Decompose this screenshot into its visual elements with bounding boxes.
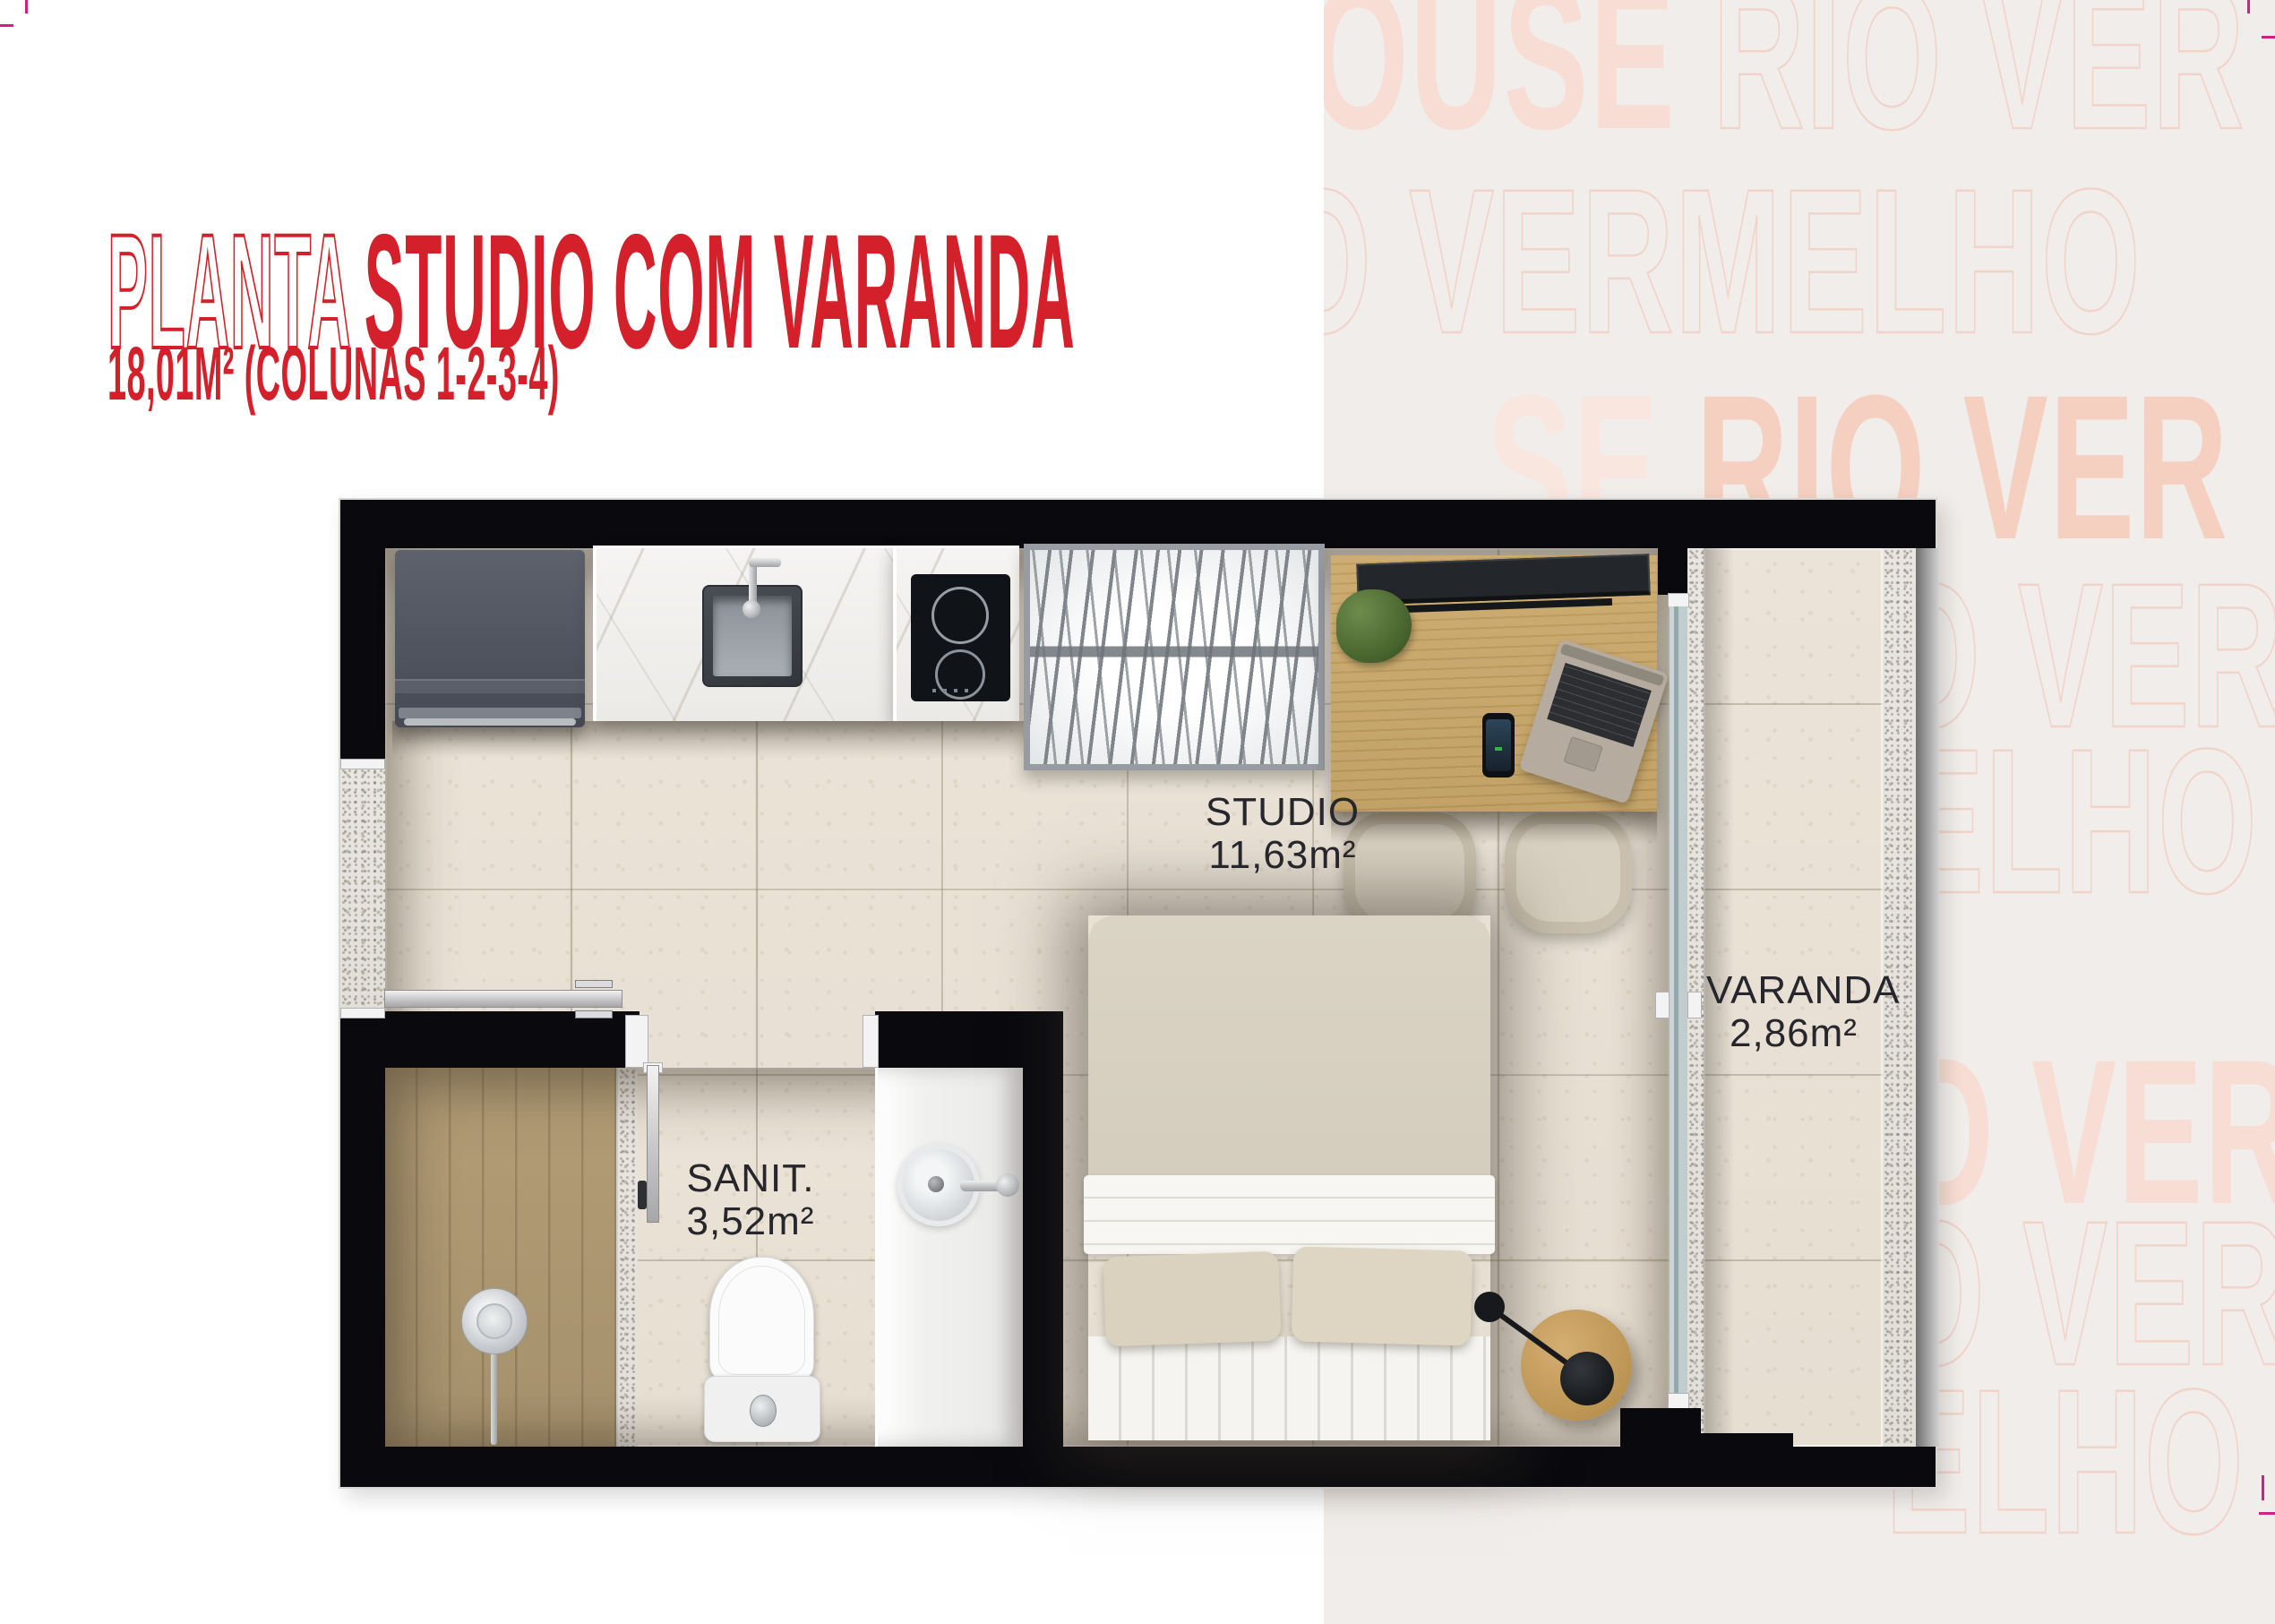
washer-icon [395, 550, 585, 727]
pillow [1103, 1251, 1281, 1347]
entry-door [384, 990, 622, 1008]
phone-screen-dot [1495, 747, 1502, 751]
shower-arm [491, 1351, 497, 1445]
wall-step [1620, 1433, 1793, 1447]
bed-duvet [1088, 915, 1490, 1182]
sliding-door-handle [1655, 992, 1670, 1018]
watermark-row: OUSE RIO VER [1324, 0, 2245, 160]
kitchen-faucet-base [743, 600, 760, 618]
wall-cap [340, 759, 385, 769]
entry-wall-granite [340, 768, 385, 1010]
cooktop-burner [931, 587, 989, 644]
bathroom-door [647, 1065, 659, 1223]
room-area: 3,52m² [670, 1200, 831, 1243]
drying-rack-icon [1024, 544, 1325, 770]
crop-mark-bottom-right [2259, 1512, 2275, 1515]
room-name: STUDIO [1193, 791, 1372, 834]
washer-trim [399, 708, 581, 718]
crop-mark-top-left [25, 0, 28, 13]
toilet-icon [709, 1257, 814, 1384]
plant-icon [1336, 589, 1412, 663]
room-area: 2,86m² [1706, 1012, 1881, 1055]
page-subtitle: 18,01M² (COLUNAS 1-2-3-4) [107, 336, 560, 411]
watermark-row: ELHO [1899, 718, 2258, 924]
desk [1331, 555, 1657, 812]
desk-shadow [1331, 812, 1657, 844]
watermark-text: ELHO [1899, 706, 2258, 936]
watermark-row: ELHO [1885, 1359, 2245, 1565]
varanda-wall-shadow [1916, 548, 1939, 1447]
bed-striped-pillows [1088, 1336, 1490, 1440]
shower-floor [385, 1068, 618, 1447]
room-label-sanit: SANIT. 3,52m² [670, 1157, 831, 1244]
bed [1088, 915, 1490, 1440]
door-jamb [863, 1015, 879, 1068]
shower-partition-wall [618, 1068, 638, 1447]
sliding-door-cap [1668, 1393, 1689, 1409]
sliding-door-handle [1687, 992, 1702, 1018]
watermark-text: ELHO [1885, 1346, 2245, 1577]
interior-wall [371, 1011, 640, 1068]
pillow [1292, 1246, 1473, 1345]
crop-mark-top-right [2262, 36, 2275, 39]
crop-mark-bottom-right [2262, 1475, 2264, 1500]
vanity-counter [875, 1068, 1023, 1447]
crop-mark-top-left [0, 24, 13, 27]
toilet-flush-button [750, 1395, 777, 1427]
bathroom-door-handle [638, 1181, 647, 1209]
phone-screen [1486, 719, 1511, 771]
cooktop-icon [911, 574, 1010, 701]
kitchen-faucet-arm [749, 558, 781, 567]
lamp-head-icon [1474, 1292, 1505, 1322]
interior-wall [1023, 1011, 1063, 1447]
phone-icon [1482, 713, 1515, 778]
watermark-text: O VERMELHO [1324, 146, 2142, 376]
lamp-base [1560, 1352, 1614, 1405]
crop-mark-top-right [2247, 0, 2250, 13]
kitchen-counter [593, 546, 893, 721]
cooktop-controls [932, 689, 974, 692]
sliding-door-cap [1668, 593, 1689, 607]
room-label-varanda: VARANDA 2,86m² [1706, 969, 1881, 1056]
cooktop-counter [893, 546, 1019, 721]
laptop-icon [1518, 639, 1669, 804]
sliding-glass-door [1670, 606, 1687, 1393]
watermark-row: O VERMELHO [1324, 159, 2142, 365]
room-label-studio: STUDIO 11,63m² [1193, 791, 1372, 878]
laptop-trackpad [1563, 736, 1602, 772]
bed-sheet-fold [1084, 1175, 1495, 1254]
room-name: SANIT. [670, 1157, 831, 1200]
washer-handle [395, 679, 585, 693]
wall-cap [340, 1008, 385, 1018]
entry-door-handle [575, 980, 613, 988]
toilet-tank [704, 1376, 820, 1442]
room-name: VARANDA [1706, 969, 1881, 1012]
entry-door-handle [575, 1010, 613, 1018]
tv-icon [1356, 554, 1650, 605]
shower-head-center [476, 1303, 512, 1339]
door-jamb [625, 1015, 648, 1068]
room-area: 11,63m² [1193, 834, 1372, 877]
bathroom-faucet-knob [996, 1173, 1019, 1197]
floor-plan: STUDIO 11,63m² SANIT. 3,52m² VARANDA 2,8… [339, 498, 1937, 1489]
washer-base [404, 718, 576, 726]
shower-head-icon [461, 1288, 528, 1354]
toilet-seat-line [718, 1266, 805, 1375]
drying-rack-bars [1030, 550, 1318, 764]
sink-drain [928, 1176, 944, 1192]
